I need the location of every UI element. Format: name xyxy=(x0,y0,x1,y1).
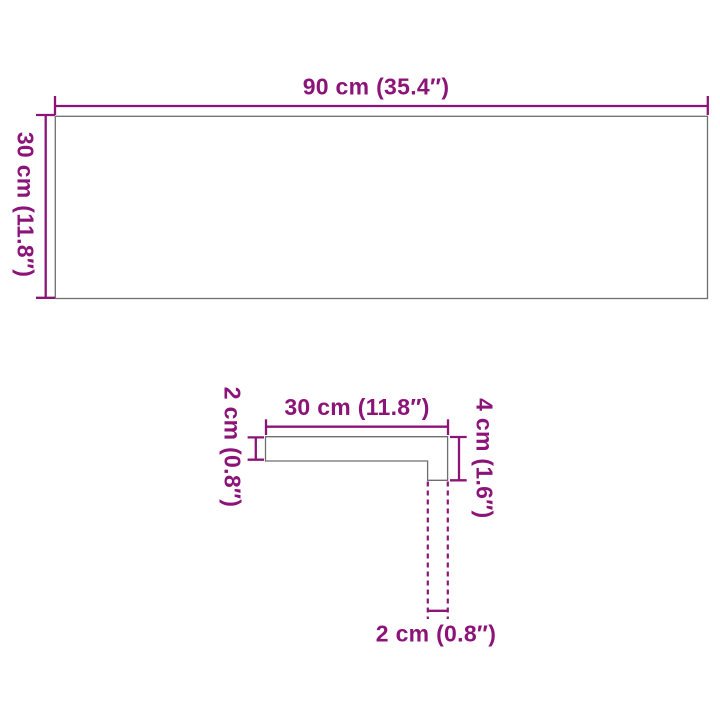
svg-text:4 cm (1.6″): 4 cm (1.6″) xyxy=(472,398,498,518)
svg-text:30 cm (11.8″): 30 cm (11.8″) xyxy=(13,132,39,277)
svg-text:2 cm (0.8″): 2 cm (0.8″) xyxy=(220,387,246,507)
svg-text:30 cm (11.8″): 30 cm (11.8″) xyxy=(284,394,429,420)
svg-text:90 cm (35.4″): 90 cm (35.4″) xyxy=(303,74,450,100)
svg-text:2 cm (0.8″): 2 cm (0.8″) xyxy=(376,621,496,647)
